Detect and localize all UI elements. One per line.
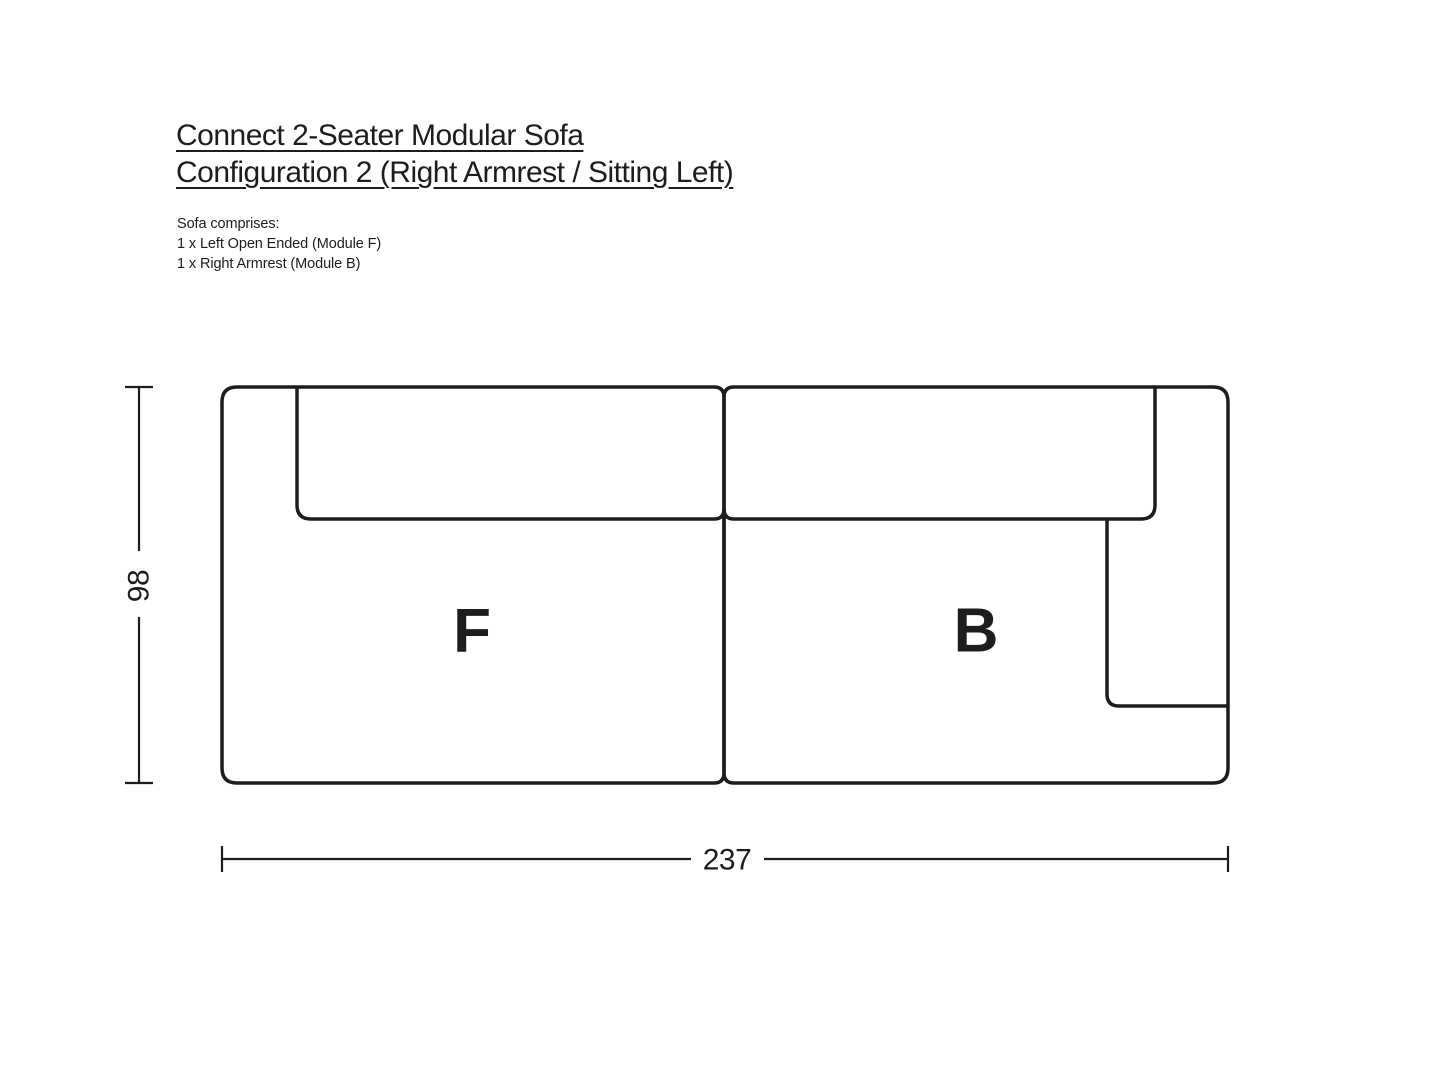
width-dimension-value: 237 bbox=[703, 844, 752, 877]
module-b-label: B bbox=[954, 597, 999, 666]
depth-dimension-value: 98 bbox=[123, 570, 156, 602]
width-dimension: 237 bbox=[222, 844, 1228, 877]
module-b-armrest-line bbox=[1107, 519, 1228, 706]
sofa-top-view-diagram: 98 237 F B bbox=[0, 0, 1445, 1087]
module-b bbox=[724, 387, 1228, 783]
module-f-label: F bbox=[453, 597, 491, 666]
module-f bbox=[222, 387, 724, 783]
product-sheet: Connect 2-Seater Modular Sofa Configurat… bbox=[0, 0, 1445, 1087]
module-b-outline bbox=[724, 387, 1228, 783]
module-b-backrest-line bbox=[724, 387, 1155, 519]
depth-dimension: 98 bbox=[122, 387, 156, 783]
module-f-backrest-line bbox=[297, 387, 724, 519]
